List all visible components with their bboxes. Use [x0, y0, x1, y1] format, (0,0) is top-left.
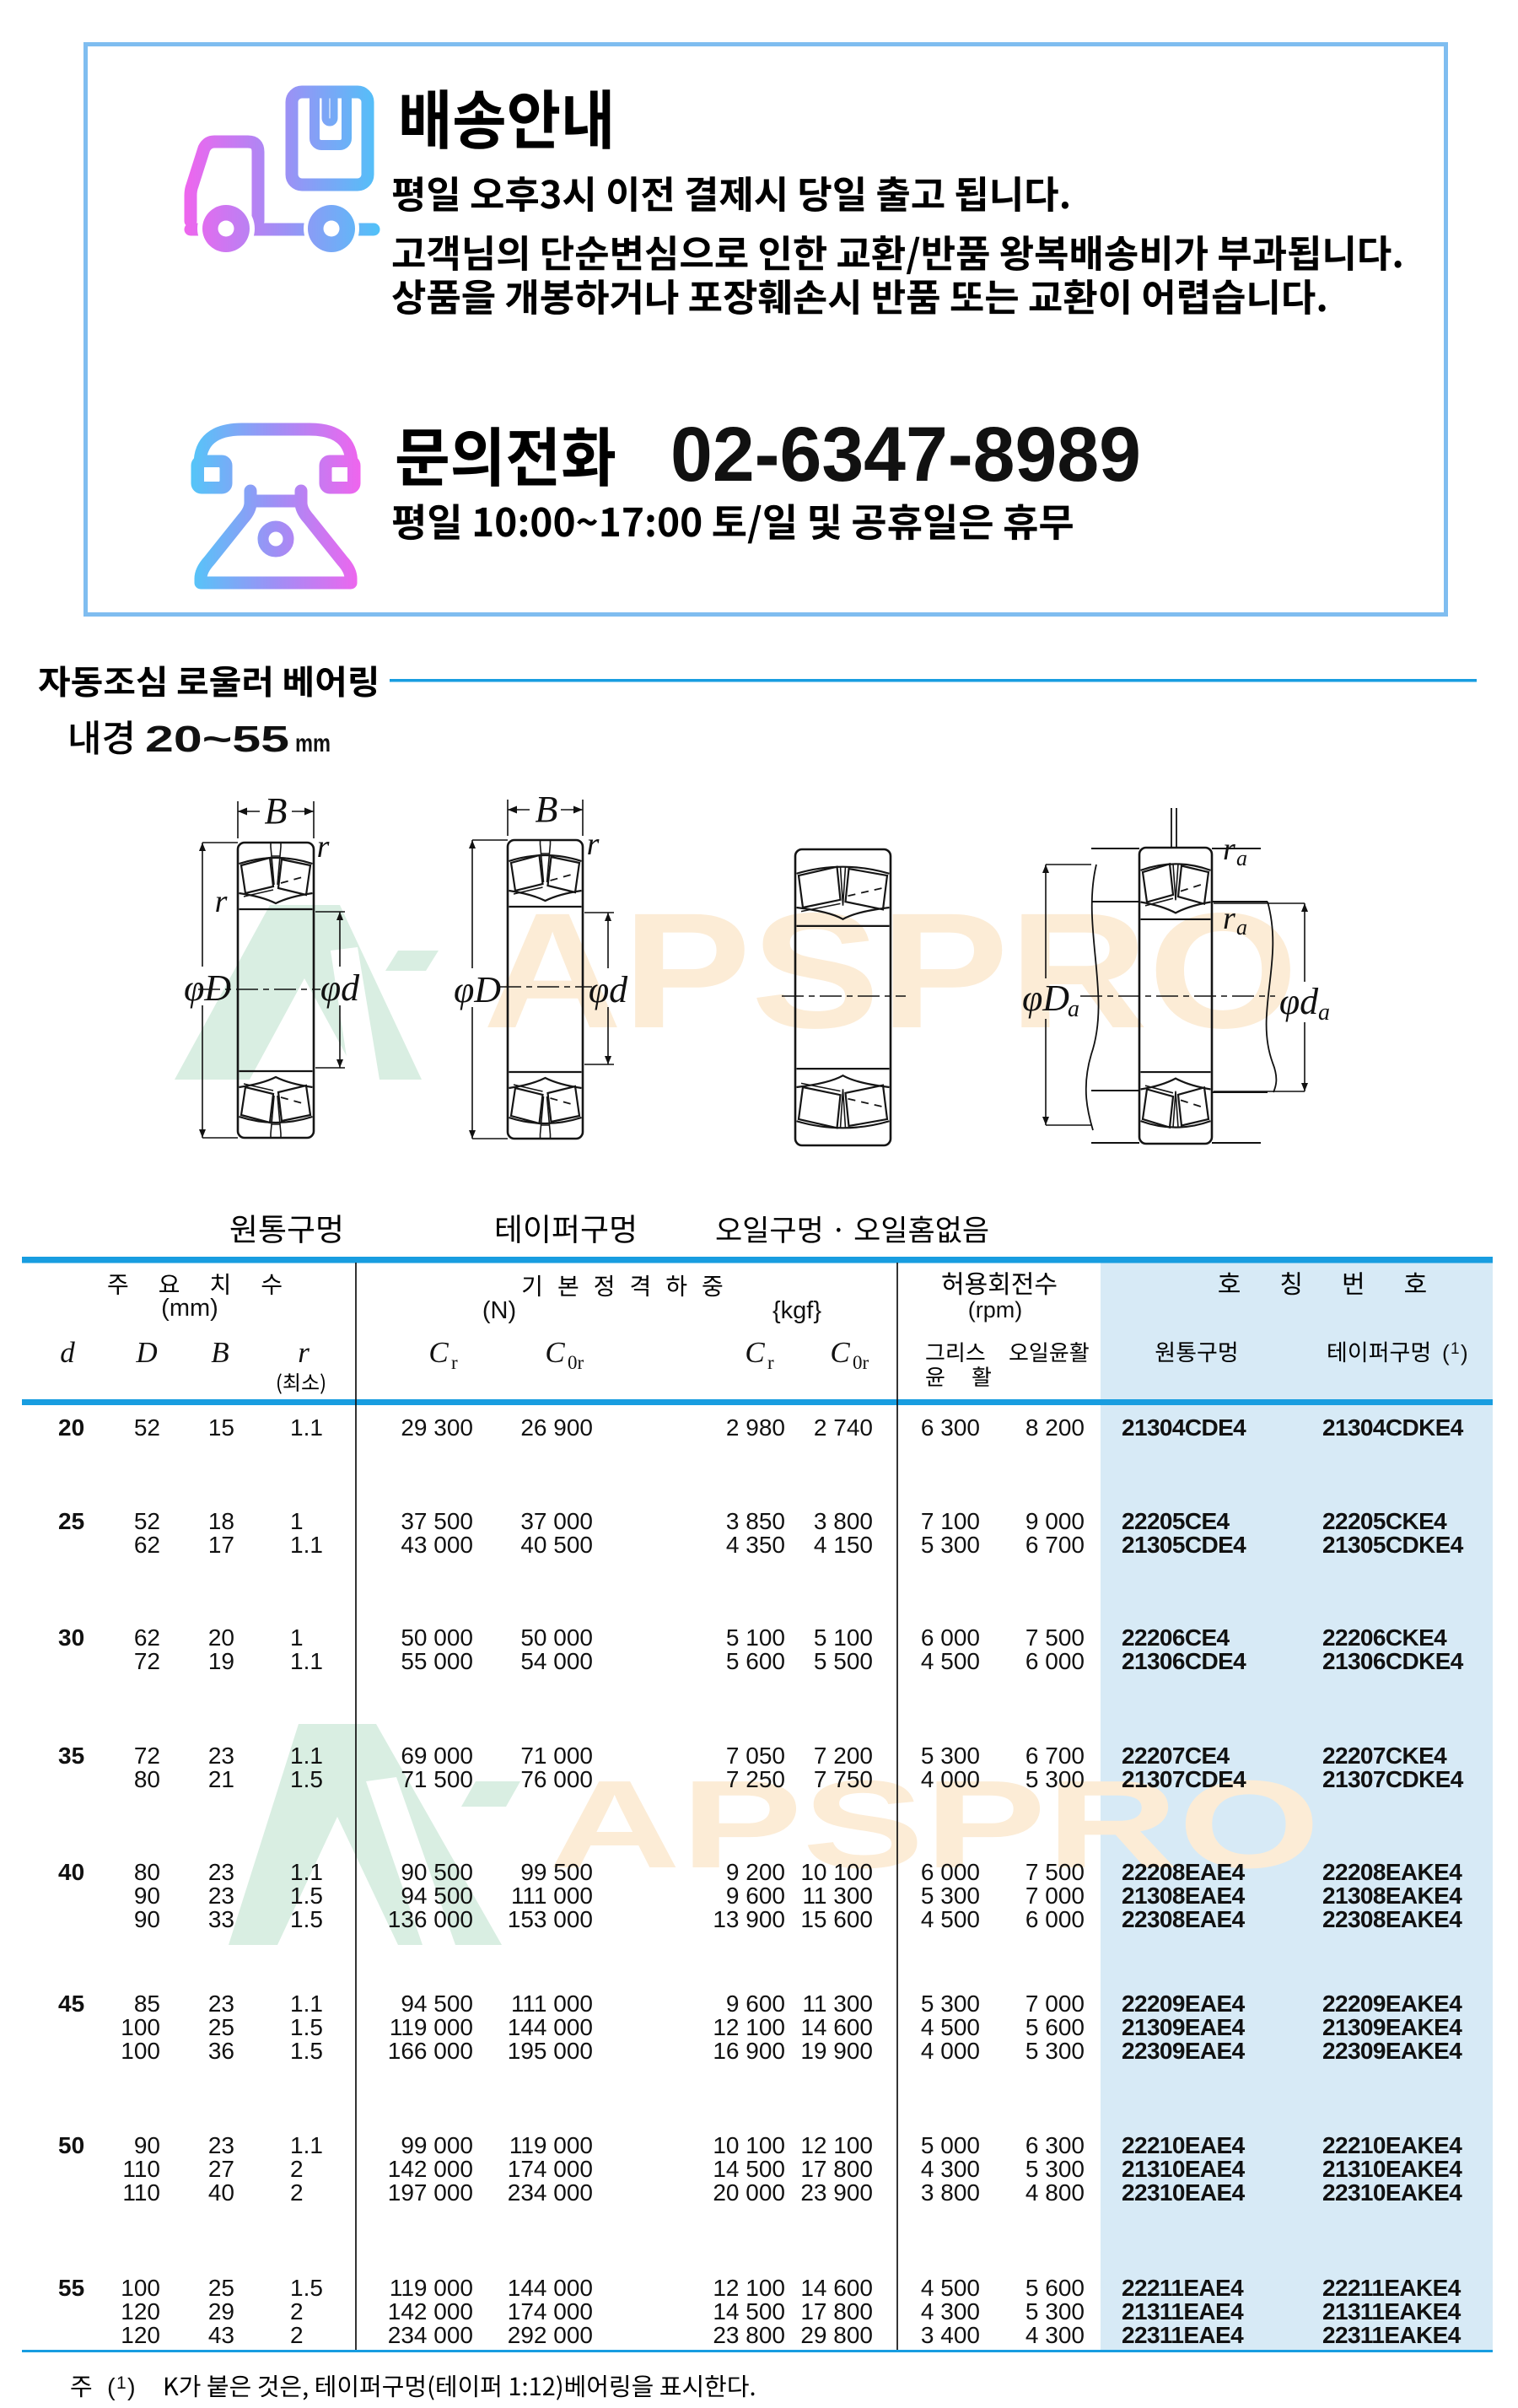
svg-text:110: 110 — [122, 2179, 160, 2206]
svg-text:23: 23 — [208, 1883, 234, 1909]
svg-text:1.5: 1.5 — [290, 1906, 323, 1932]
svg-text:15 600: 15 600 — [800, 1906, 873, 1932]
svg-text:13 900: 13 900 — [713, 1906, 785, 1932]
svg-text:1.5: 1.5 — [290, 2038, 323, 2064]
svg-text:23: 23 — [208, 1859, 234, 1885]
svg-text:120: 120 — [121, 2322, 160, 2348]
svg-text:21310EAKE4: 21310EAKE4 — [1322, 2156, 1462, 2182]
svg-text:4 500: 4 500 — [921, 2275, 980, 2301]
svg-text:43 000: 43 000 — [401, 1532, 473, 1558]
svg-text:r: r — [587, 827, 600, 862]
svg-text:10 100: 10 100 — [713, 2132, 785, 2158]
svg-text:142 000: 142 000 — [388, 2156, 473, 2182]
svg-text:B: B — [536, 789, 558, 830]
svg-text:3 850: 3 850 — [726, 1508, 785, 1534]
svg-text:166 000: 166 000 — [388, 2038, 473, 2064]
svg-text:22308EAE4: 22308EAE4 — [1122, 1906, 1246, 1932]
svg-text:5 300: 5 300 — [1025, 1766, 1085, 1792]
svg-text:0r: 0r — [568, 1352, 584, 1373]
svg-text:02-6347-8989: 02-6347-8989 — [670, 412, 1141, 498]
svg-text:144 000: 144 000 — [508, 2275, 593, 2301]
svg-text:C: C — [830, 1336, 850, 1369]
svg-text:d: d — [60, 1336, 75, 1369]
svg-text:14 500: 14 500 — [713, 2156, 785, 2182]
svg-text:111 000: 111 000 — [511, 1883, 593, 1909]
svg-text:r: r — [1223, 901, 1235, 936]
svg-text:9 600: 9 600 — [726, 1991, 785, 2017]
svg-text:55: 55 — [58, 2275, 84, 2301]
svg-text:1.1: 1.1 — [290, 1648, 323, 1674]
svg-text:2 740: 2 740 — [814, 1414, 873, 1441]
svg-text:22211EAKE4: 22211EAKE4 — [1322, 2275, 1461, 2301]
svg-text:21309EAE4: 21309EAE4 — [1122, 2014, 1246, 2040]
svg-text:22207CE4: 22207CE4 — [1122, 1743, 1230, 1769]
svg-text:94 500: 94 500 — [401, 1991, 473, 2017]
svg-text:50 000: 50 000 — [401, 1624, 473, 1651]
svg-text:174 000: 174 000 — [508, 2156, 593, 2182]
svg-text:): ) — [127, 2374, 136, 2401]
svg-text:29 300: 29 300 — [401, 1414, 473, 1441]
svg-text:9 600: 9 600 — [726, 1883, 785, 1909]
svg-text:5 300: 5 300 — [921, 1532, 980, 1558]
svg-text:27: 27 — [208, 2156, 234, 2182]
svg-text:3 400: 3 400 — [921, 2322, 980, 2348]
svg-text:2: 2 — [290, 2322, 304, 2348]
svg-text:5 300: 5 300 — [1025, 2298, 1085, 2325]
svg-text:234 000: 234 000 — [508, 2179, 593, 2206]
svg-text:21308EAKE4: 21308EAKE4 — [1322, 1883, 1462, 1909]
svg-text:20: 20 — [208, 1624, 234, 1651]
svg-text:1.1: 1.1 — [290, 1743, 323, 1769]
svg-text:25: 25 — [58, 1508, 84, 1534]
svg-text:76 000: 76 000 — [520, 1766, 593, 1792]
svg-text:a: a — [1068, 996, 1079, 1022]
svg-text:a: a — [1236, 915, 1247, 940]
svg-text:26 900: 26 900 — [520, 1414, 593, 1441]
svg-text:21311EAKE4: 21311EAKE4 — [1322, 2298, 1461, 2325]
svg-text:197 000: 197 000 — [388, 2179, 473, 2206]
svg-text:30: 30 — [58, 1624, 84, 1651]
svg-text:119 000: 119 000 — [390, 2275, 473, 2301]
svg-text:1: 1 — [290, 1624, 304, 1651]
svg-text:37 000: 37 000 — [520, 1508, 593, 1534]
svg-text:25: 25 — [208, 2014, 234, 2040]
svg-text:5 600: 5 600 — [726, 1648, 785, 1674]
svg-text:21305CDKE4: 21305CDKE4 — [1322, 1532, 1464, 1558]
svg-text:6 700: 6 700 — [1025, 1532, 1085, 1558]
svg-text:22308EAKE4: 22308EAKE4 — [1322, 1906, 1462, 1932]
svg-text:9 000: 9 000 — [1025, 1508, 1085, 1534]
svg-text:{kgf}: {kgf} — [772, 1297, 821, 1324]
svg-text:21304CDE4: 21304CDE4 — [1122, 1414, 1246, 1441]
svg-text:C: C — [428, 1336, 449, 1369]
svg-text:4 000: 4 000 — [921, 1766, 980, 1792]
svg-text:153 000: 153 000 — [508, 1906, 593, 1932]
svg-text:22206CKE4: 22206CKE4 — [1322, 1624, 1447, 1651]
svg-text:20~55: 20~55 — [145, 719, 289, 760]
svg-text:21307CDKE4: 21307CDKE4 — [1322, 1766, 1464, 1792]
svg-text:23 900: 23 900 — [800, 2179, 873, 2206]
svg-text:1.1: 1.1 — [290, 2132, 323, 2158]
svg-text:6 000: 6 000 — [921, 1859, 980, 1885]
svg-text:1.5: 1.5 — [290, 1766, 323, 1792]
svg-text:71 500: 71 500 — [401, 1766, 473, 1792]
svg-text:90: 90 — [134, 2132, 160, 2158]
svg-text:7 500: 7 500 — [1025, 1859, 1085, 1885]
svg-text:19: 19 — [208, 1648, 234, 1674]
svg-text:234 000: 234 000 — [388, 2322, 473, 2348]
svg-text:1.5: 1.5 — [290, 1883, 323, 1909]
svg-text:50 000: 50 000 — [520, 1624, 593, 1651]
svg-text:11 300: 11 300 — [802, 1991, 873, 2017]
svg-text:B: B — [265, 790, 288, 832]
svg-text:23: 23 — [208, 1743, 234, 1769]
svg-text:99 500: 99 500 — [520, 1859, 593, 1885]
svg-text:11 300: 11 300 — [802, 1883, 873, 1909]
svg-text:(: ( — [1442, 1340, 1450, 1366]
svg-text:2: 2 — [290, 2179, 304, 2206]
svg-text:): ) — [1461, 1340, 1468, 1366]
svg-text:r: r — [298, 1336, 310, 1369]
svg-text:29: 29 — [208, 2298, 234, 2325]
svg-text:90: 90 — [134, 1883, 160, 1909]
svg-text:20 000: 20 000 — [713, 2179, 785, 2206]
svg-text:7 500: 7 500 — [1025, 1624, 1085, 1651]
svg-text:B: B — [211, 1336, 229, 1369]
svg-text:4 500: 4 500 — [921, 1906, 980, 1932]
svg-text:111 000: 111 000 — [511, 1991, 593, 2017]
svg-text:85: 85 — [134, 1991, 160, 2017]
svg-text:φd: φd — [1279, 981, 1319, 1022]
svg-text:21310EAE4: 21310EAE4 — [1122, 2156, 1246, 2182]
svg-text:3 800: 3 800 — [814, 1508, 873, 1534]
svg-text:(mm): (mm) — [161, 1295, 218, 1322]
svg-text:90: 90 — [134, 1906, 160, 1932]
svg-text:6 000: 6 000 — [1025, 1906, 1085, 1932]
svg-text:174 000: 174 000 — [508, 2298, 593, 2325]
svg-text:142 000: 142 000 — [388, 2298, 473, 2325]
svg-text:292 000: 292 000 — [508, 2322, 593, 2348]
svg-text:4 800: 4 800 — [1025, 2179, 1085, 2206]
svg-text:4 150: 4 150 — [814, 1532, 873, 1558]
svg-text:21304CDKE4: 21304CDKE4 — [1322, 1414, 1464, 1441]
svg-text:22311EAKE4: 22311EAKE4 — [1322, 2322, 1461, 2348]
svg-text:72: 72 — [134, 1743, 160, 1769]
svg-text:2: 2 — [290, 2156, 304, 2182]
svg-text:19 900: 19 900 — [800, 2038, 873, 2064]
svg-text:21311EAE4: 21311EAE4 — [1122, 2298, 1244, 2325]
svg-text:119 000: 119 000 — [390, 2014, 473, 2040]
svg-text:8 200: 8 200 — [1025, 1414, 1085, 1441]
svg-text:C: C — [545, 1336, 565, 1369]
svg-text:62: 62 — [134, 1624, 160, 1651]
svg-text:29 800: 29 800 — [800, 2322, 873, 2348]
svg-text:21308EAE4: 21308EAE4 — [1122, 1883, 1246, 1909]
svg-text:25: 25 — [208, 2275, 234, 2301]
svg-text:40 500: 40 500 — [520, 1532, 593, 1558]
svg-text:r: r — [1223, 832, 1235, 867]
svg-text:φD: φD — [1022, 978, 1069, 1019]
svg-text:52: 52 — [134, 1508, 160, 1534]
svg-text:22211EAE4: 22211EAE4 — [1122, 2275, 1244, 2301]
svg-text:4 000: 4 000 — [921, 2038, 980, 2064]
svg-text:136 000: 136 000 — [388, 1906, 473, 1932]
svg-text:12 100: 12 100 — [713, 2014, 785, 2040]
svg-text:22205CKE4: 22205CKE4 — [1322, 1508, 1447, 1534]
svg-text:110: 110 — [122, 2156, 160, 2182]
svg-text:1.5: 1.5 — [290, 2014, 323, 2040]
svg-text:23 800: 23 800 — [713, 2322, 785, 2348]
svg-text:a: a — [1318, 999, 1330, 1026]
svg-text:1.1: 1.1 — [290, 1991, 323, 2017]
svg-text:6 000: 6 000 — [921, 1624, 980, 1651]
svg-text:35: 35 — [58, 1743, 84, 1769]
svg-text:5 600: 5 600 — [1025, 2275, 1085, 2301]
svg-text:1.5: 1.5 — [290, 2275, 323, 2301]
svg-text:36: 36 — [208, 2038, 234, 2064]
svg-text:43: 43 — [208, 2322, 234, 2348]
svg-text:15: 15 — [208, 1414, 234, 1441]
svg-text:5 300: 5 300 — [921, 1991, 980, 2017]
svg-text:1: 1 — [1451, 1340, 1460, 1358]
svg-text:52: 52 — [134, 1414, 160, 1441]
svg-text:119 000: 119 000 — [509, 2132, 593, 2158]
svg-text:21306CDE4: 21306CDE4 — [1122, 1648, 1246, 1674]
svg-text:5 300: 5 300 — [921, 1883, 980, 1909]
svg-text:17 800: 17 800 — [800, 2156, 873, 2182]
svg-text:54 000: 54 000 — [520, 1648, 593, 1674]
svg-text:21: 21 — [208, 1766, 234, 1792]
svg-text:80: 80 — [134, 1859, 160, 1885]
svg-text:a: a — [1236, 846, 1247, 870]
svg-text:7 750: 7 750 — [814, 1766, 873, 1792]
svg-text:6 000: 6 000 — [1025, 1648, 1085, 1674]
svg-text:5 500: 5 500 — [814, 1648, 873, 1674]
svg-text:21307CDE4: 21307CDE4 — [1122, 1766, 1246, 1792]
svg-text:6 300: 6 300 — [921, 1414, 980, 1441]
svg-text:22210EAKE4: 22210EAKE4 — [1322, 2132, 1462, 2158]
svg-text:22208EAE4: 22208EAE4 — [1122, 1859, 1246, 1885]
svg-text:r: r — [317, 829, 330, 865]
svg-text:(N): (N) — [482, 1297, 516, 1324]
svg-text:4 300: 4 300 — [921, 2156, 980, 2182]
svg-text:mm: mm — [295, 730, 331, 757]
svg-text:22205CE4: 22205CE4 — [1122, 1508, 1230, 1534]
svg-text:2 980: 2 980 — [726, 1414, 785, 1441]
svg-text:45: 45 — [58, 1991, 84, 2017]
svg-text:(rpm): (rpm) — [968, 1297, 1022, 1323]
svg-text:144 000: 144 000 — [508, 2014, 593, 2040]
svg-text:22206CE4: 22206CE4 — [1122, 1624, 1230, 1651]
svg-text:5 000: 5 000 — [921, 2132, 980, 2158]
svg-text:80: 80 — [134, 1766, 160, 1792]
svg-text:37 500: 37 500 — [401, 1508, 473, 1534]
svg-text:23: 23 — [208, 1991, 234, 2017]
svg-text:21306CDKE4: 21306CDKE4 — [1322, 1648, 1464, 1674]
svg-text:r: r — [451, 1352, 458, 1373]
svg-text:7 000: 7 000 — [1025, 1991, 1085, 2017]
svg-text:14 500: 14 500 — [713, 2298, 785, 2325]
svg-text:5 300: 5 300 — [921, 1743, 980, 1769]
svg-text:20: 20 — [58, 1414, 84, 1441]
svg-text:22209EAKE4: 22209EAKE4 — [1322, 1991, 1462, 2017]
svg-text:22207CKE4: 22207CKE4 — [1322, 1743, 1447, 1769]
svg-text:40: 40 — [208, 2179, 234, 2206]
svg-text:120: 120 — [121, 2298, 160, 2325]
svg-text:φd: φd — [320, 967, 360, 1009]
svg-text:5 300: 5 300 — [1025, 2156, 1085, 2182]
svg-text:50: 50 — [58, 2132, 84, 2158]
svg-text:φD: φD — [184, 967, 231, 1009]
svg-text:40: 40 — [58, 1859, 84, 1885]
svg-text:14 600: 14 600 — [800, 2014, 873, 2040]
svg-text:4 500: 4 500 — [921, 1648, 980, 1674]
svg-text:17: 17 — [208, 1532, 234, 1558]
svg-text:7 000: 7 000 — [1025, 1883, 1085, 1909]
svg-text:4 300: 4 300 — [921, 2298, 980, 2325]
svg-text:14 600: 14 600 — [800, 2275, 873, 2301]
svg-text:1: 1 — [290, 1508, 304, 1534]
svg-text:r: r — [215, 884, 228, 919]
svg-text:72: 72 — [134, 1648, 160, 1674]
svg-text:22310EAE4: 22310EAE4 — [1122, 2179, 1246, 2206]
svg-text:94 500: 94 500 — [401, 1883, 473, 1909]
svg-text:17 800: 17 800 — [800, 2298, 873, 2325]
svg-text:71 000: 71 000 — [520, 1743, 593, 1769]
svg-text:22309EAE4: 22309EAE4 — [1122, 2038, 1246, 2064]
svg-text:10 100: 10 100 — [800, 1859, 873, 1885]
svg-text:6 700: 6 700 — [1025, 1743, 1085, 1769]
svg-text:12 100: 12 100 — [713, 2275, 785, 2301]
svg-text:r: r — [767, 1352, 774, 1373]
svg-text:4 300: 4 300 — [1025, 2322, 1085, 2348]
svg-text:2: 2 — [290, 2298, 304, 2325]
svg-text:90 500: 90 500 — [401, 1859, 473, 1885]
svg-text:1.1: 1.1 — [290, 1859, 323, 1885]
svg-text:4 350: 4 350 — [726, 1532, 785, 1558]
svg-text:5 100: 5 100 — [726, 1624, 785, 1651]
svg-text:7 100: 7 100 — [921, 1508, 980, 1534]
svg-text:φd: φd — [589, 969, 628, 1010]
svg-text:18: 18 — [208, 1508, 234, 1534]
svg-text:3 800: 3 800 — [921, 2179, 980, 2206]
svg-text:1.1: 1.1 — [290, 1532, 323, 1558]
svg-text:6 300: 6 300 — [1025, 2132, 1085, 2158]
svg-text:5 100: 5 100 — [814, 1624, 873, 1651]
svg-text:7 200: 7 200 — [814, 1743, 873, 1769]
svg-text:99 000: 99 000 — [401, 2132, 473, 2158]
svg-text:22210EAE4: 22210EAE4 — [1122, 2132, 1246, 2158]
svg-text:C: C — [745, 1336, 765, 1369]
svg-text:D: D — [135, 1336, 157, 1369]
svg-text:5 300: 5 300 — [1025, 2038, 1085, 2064]
svg-text:69 000: 69 000 — [401, 1743, 473, 1769]
svg-text:1: 1 — [116, 2373, 126, 2393]
svg-text:100: 100 — [121, 2038, 160, 2064]
svg-text:5 600: 5 600 — [1025, 2014, 1085, 2040]
svg-text:4 500: 4 500 — [921, 2014, 980, 2040]
svg-text:21305CDE4: 21305CDE4 — [1122, 1532, 1246, 1558]
svg-text:100: 100 — [121, 2014, 160, 2040]
svg-text:23: 23 — [208, 2132, 234, 2158]
svg-text:21309EAKE4: 21309EAKE4 — [1322, 2014, 1462, 2040]
svg-text:9 200: 9 200 — [726, 1859, 785, 1885]
svg-text:(: ( — [107, 2374, 116, 2401]
svg-text:7 250: 7 250 — [726, 1766, 785, 1792]
svg-text:22309EAKE4: 22309EAKE4 — [1322, 2038, 1462, 2064]
svg-text:22209EAE4: 22209EAE4 — [1122, 1991, 1246, 2017]
svg-text:φD: φD — [454, 969, 501, 1010]
svg-text:195 000: 195 000 — [508, 2038, 593, 2064]
svg-text:62: 62 — [134, 1532, 160, 1558]
svg-text:33: 33 — [208, 1906, 234, 1932]
svg-text:12 100: 12 100 — [800, 2132, 873, 2158]
svg-text:22310EAKE4: 22310EAKE4 — [1322, 2179, 1462, 2206]
svg-text:22208EAKE4: 22208EAKE4 — [1322, 1859, 1462, 1885]
svg-text:1.1: 1.1 — [290, 1414, 323, 1441]
svg-text:22311EAE4: 22311EAE4 — [1122, 2322, 1244, 2348]
svg-text:55 000: 55 000 — [401, 1648, 473, 1674]
svg-text:16 900: 16 900 — [713, 2038, 785, 2064]
svg-text:0r: 0r — [853, 1352, 869, 1373]
svg-text:7 050: 7 050 — [726, 1743, 785, 1769]
svg-text:100: 100 — [121, 2275, 160, 2301]
